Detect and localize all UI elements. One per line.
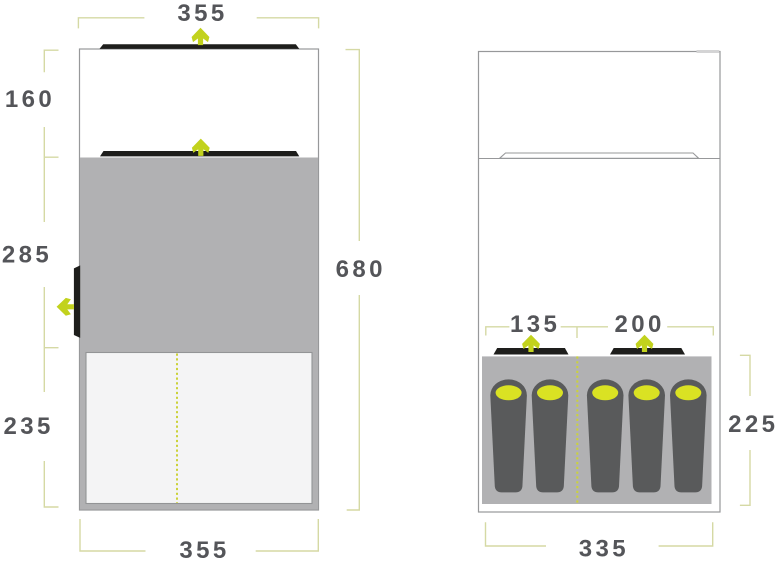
svg-text:160: 160 — [5, 86, 55, 113]
svg-text:335: 335 — [579, 536, 629, 563]
svg-text:225: 225 — [728, 411, 776, 438]
svg-text:680: 680 — [336, 256, 386, 283]
svg-text:285: 285 — [2, 242, 52, 269]
svg-text:135: 135 — [510, 311, 560, 338]
svg-text:200: 200 — [614, 311, 664, 338]
svg-text:355: 355 — [179, 537, 229, 564]
svg-text:355: 355 — [177, 0, 227, 27]
svg-text:235: 235 — [3, 413, 53, 440]
